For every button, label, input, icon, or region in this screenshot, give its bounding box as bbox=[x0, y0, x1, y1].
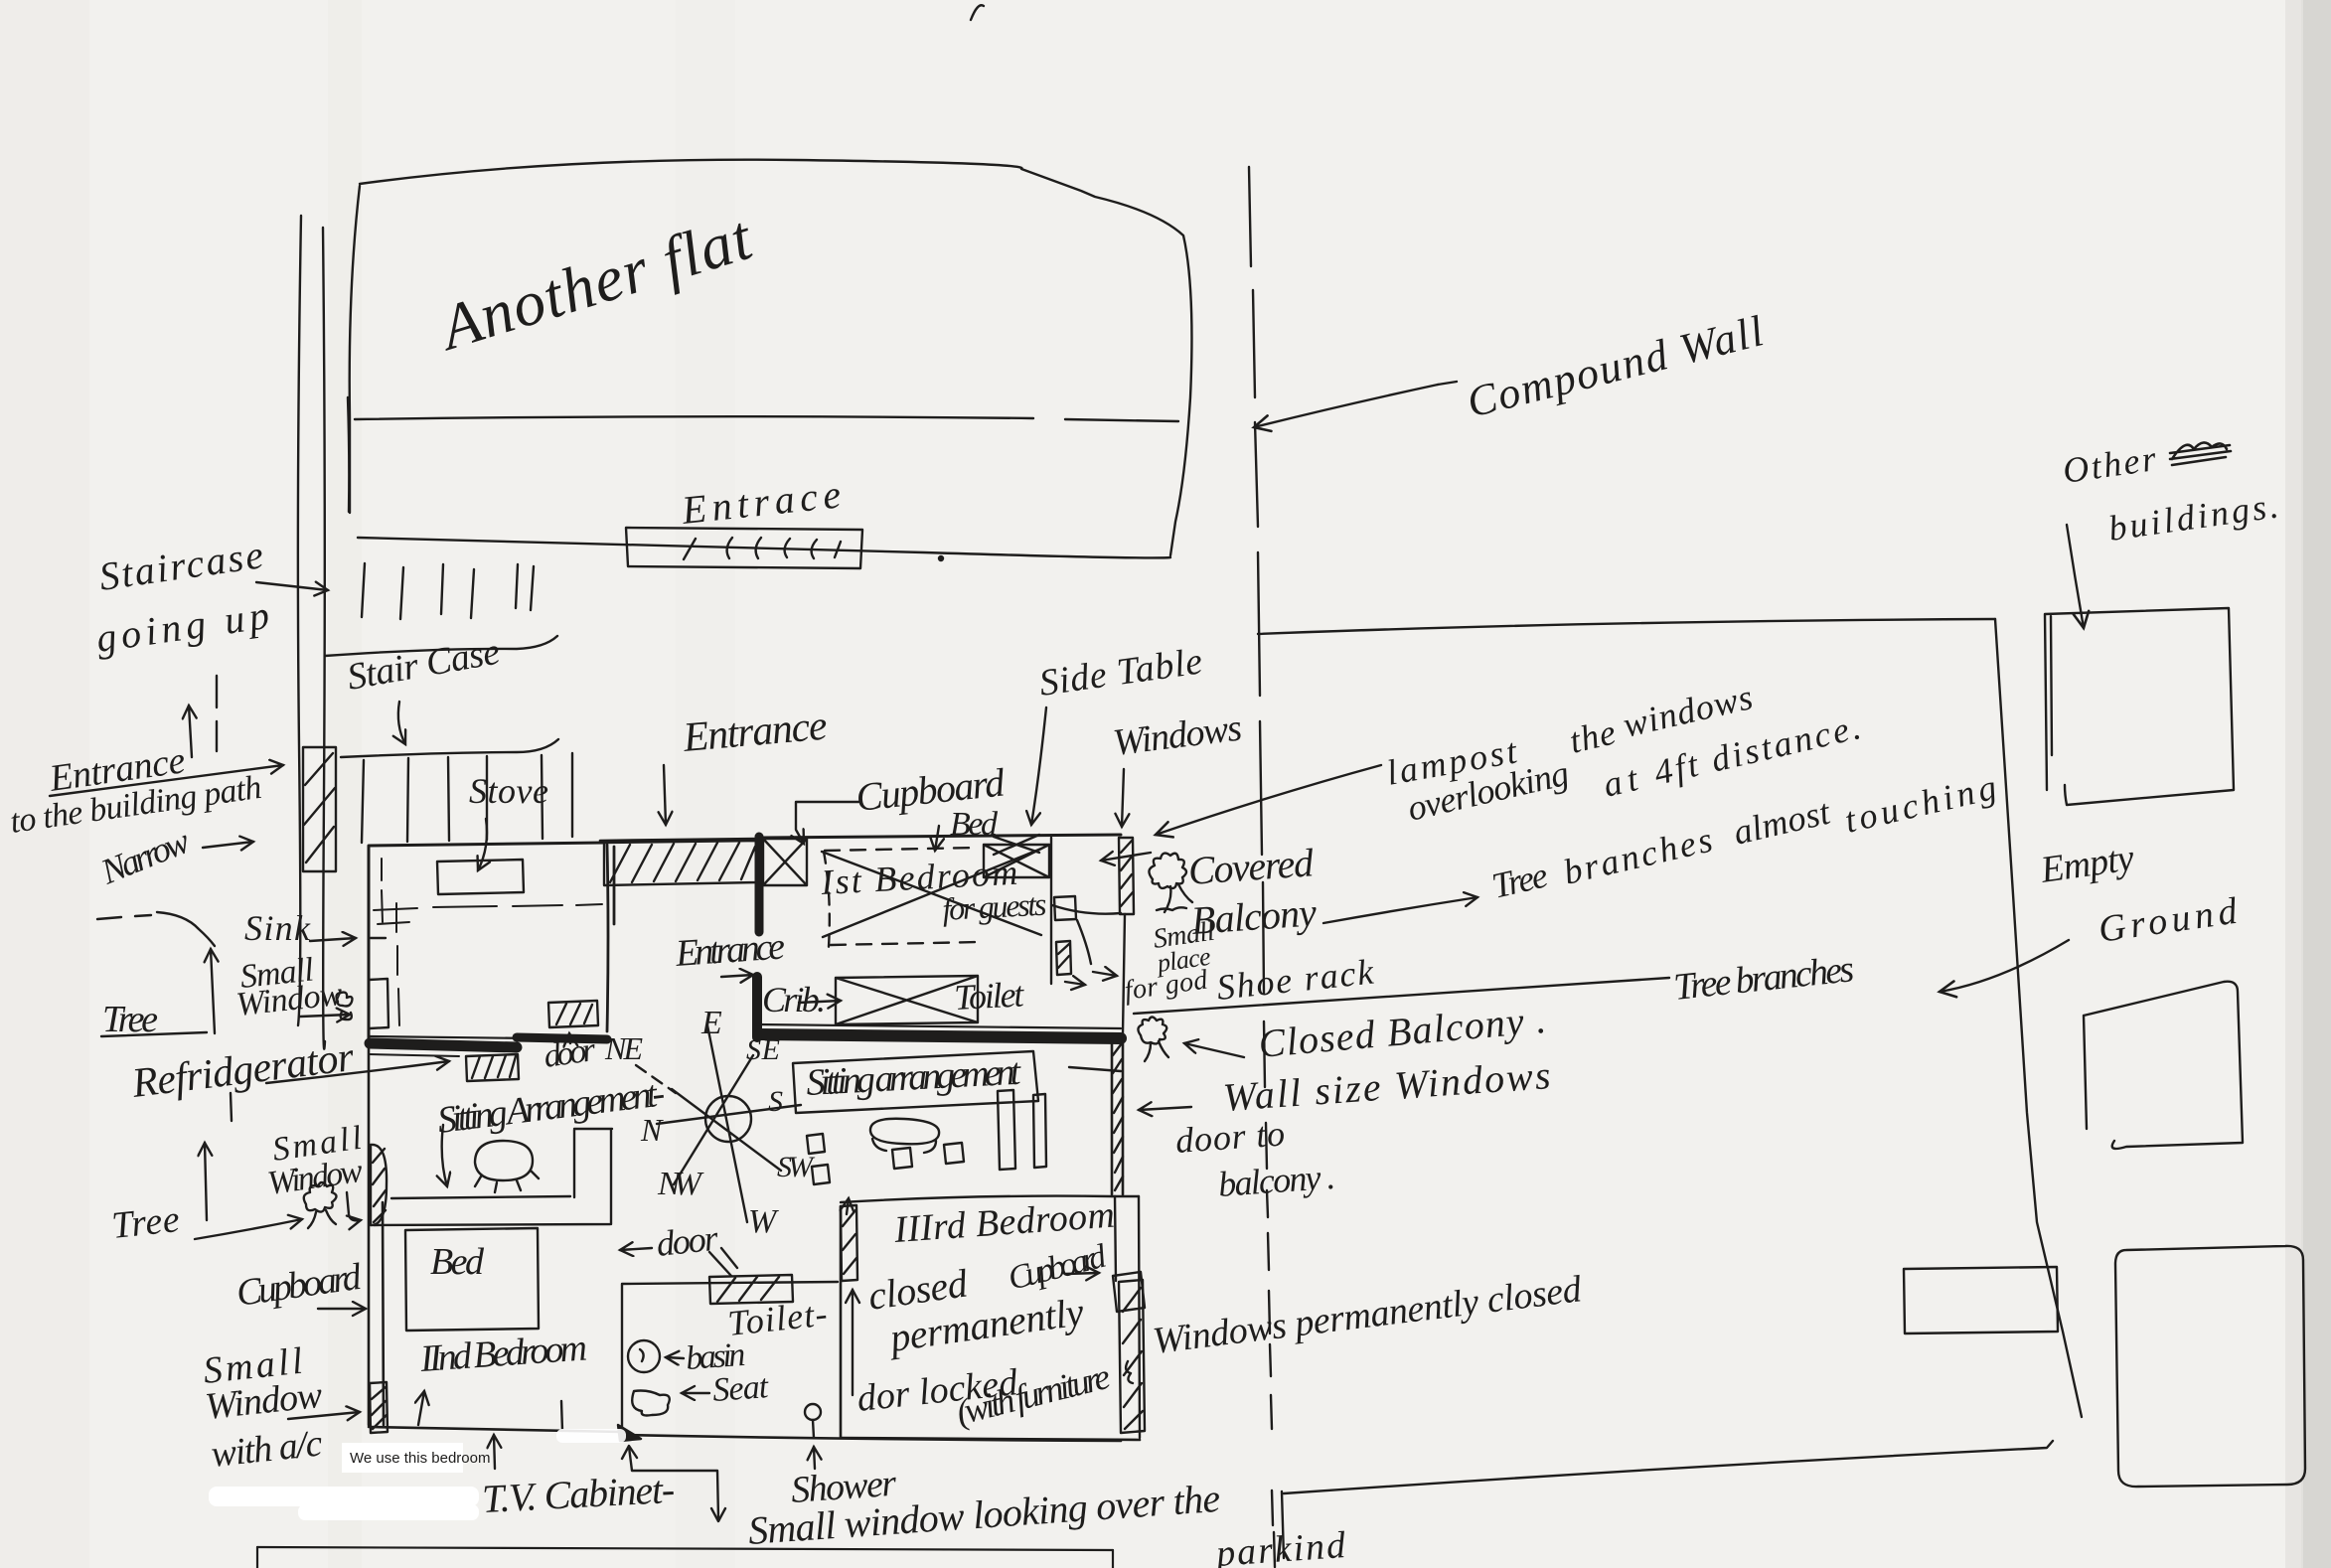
svg-text:SE: SE bbox=[746, 1033, 780, 1066]
svg-text:for guests: for guests bbox=[941, 886, 1047, 927]
svg-text:SW: SW bbox=[777, 1151, 816, 1183]
svg-text:Toilet: Toilet bbox=[953, 974, 1025, 1018]
svg-text:door to: door to bbox=[1174, 1113, 1287, 1161]
svg-text:N: N bbox=[640, 1112, 664, 1148]
svg-text:Bed: Bed bbox=[430, 1241, 485, 1283]
svg-text:Seat: Seat bbox=[711, 1368, 771, 1409]
svg-text:We use this bedroom: We use this bedroom bbox=[350, 1450, 490, 1467]
svg-text:Bed: Bed bbox=[950, 806, 999, 843]
svg-text:Stove: Stove bbox=[469, 771, 548, 811]
svg-text:Sink: Sink bbox=[244, 908, 311, 948]
svg-text:Crib.: Crib. bbox=[762, 980, 826, 1019]
svg-text:Tree: Tree bbox=[102, 999, 158, 1040]
svg-text:E: E bbox=[700, 1005, 722, 1041]
svg-text:door: door bbox=[655, 1218, 721, 1264]
svg-text:door: door bbox=[542, 1031, 598, 1075]
svg-text:S: S bbox=[768, 1085, 783, 1118]
svg-text:W: W bbox=[748, 1203, 779, 1240]
svg-text:NE: NE bbox=[604, 1030, 643, 1066]
svg-text:Tree: Tree bbox=[110, 1198, 182, 1247]
svg-text:Covered: Covered bbox=[1186, 840, 1316, 893]
svg-text:balcony .: balcony . bbox=[1217, 1157, 1337, 1204]
svg-text:NW: NW bbox=[657, 1166, 704, 1202]
svg-text:Entrance: Entrance bbox=[674, 925, 787, 975]
